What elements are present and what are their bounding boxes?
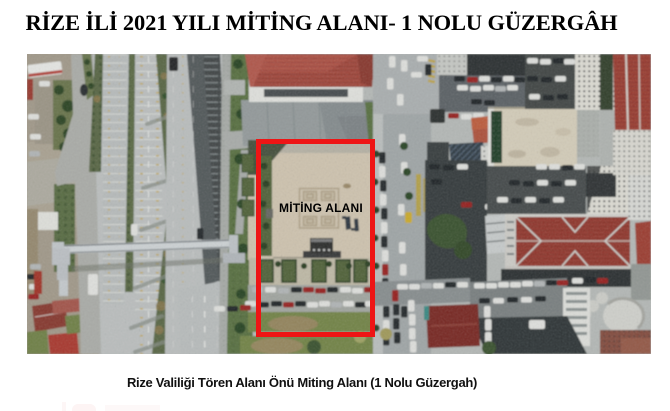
svg-text:MİTİNG ALANI: MİTİNG ALANI — [279, 200, 363, 215]
